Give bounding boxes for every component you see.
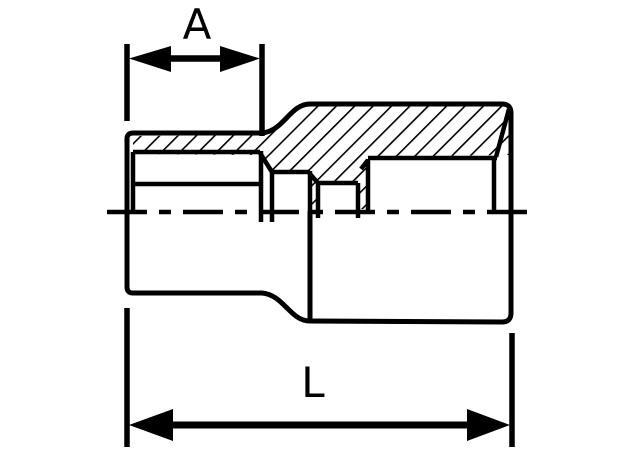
dimension-a: A <box>127 0 262 136</box>
arrowhead-right-icon <box>467 409 510 441</box>
dimension-a-label: A <box>183 0 212 49</box>
page-body: { "diagram": { "type": "engineering-draw… <box>0 0 640 455</box>
drawing-page: A L <box>0 0 640 455</box>
dimension-l-label: L <box>301 358 325 407</box>
arrowhead-left-icon <box>129 46 171 72</box>
arrowhead-right-icon <box>220 46 260 72</box>
arrowhead-left-icon <box>129 409 173 441</box>
technical-drawing-canvas: A L <box>0 0 640 455</box>
dimension-l: L <box>127 308 512 447</box>
